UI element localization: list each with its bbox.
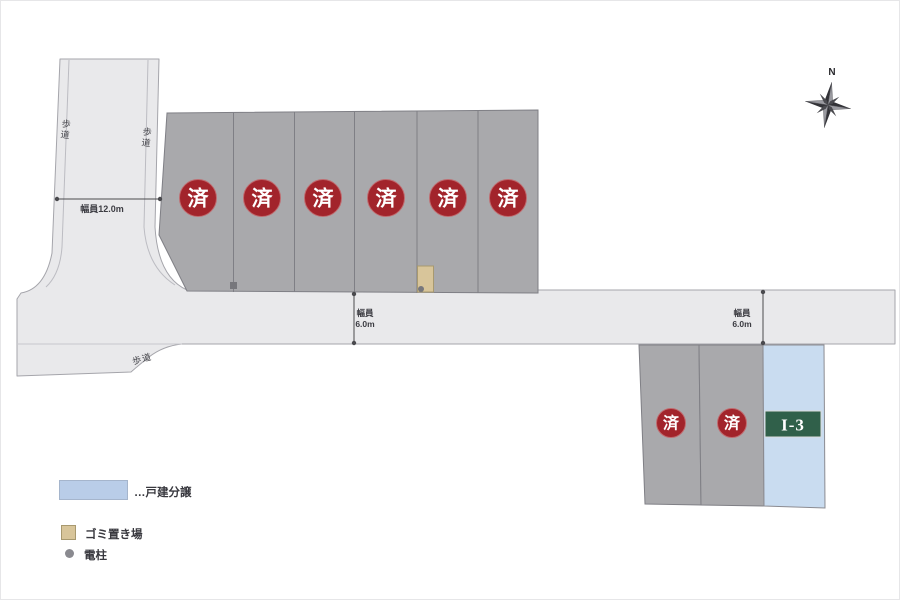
sold-badge-text: 済 (438, 187, 460, 211)
sold-badge-text: 済 (188, 187, 210, 211)
sidewalk-label: 歩道 (58, 118, 73, 141)
road-width-label-line1: 幅員 (725, 308, 759, 319)
compass-icon (802, 79, 855, 132)
sold-badge-text: 済 (724, 414, 741, 433)
utility-pole-marker (230, 282, 237, 289)
sold-badge: 済 (180, 180, 217, 217)
road-width-label: 幅員 6.0m (348, 308, 382, 330)
sold-badge: 済 (657, 409, 686, 438)
road-width-label-line2: 6.0m (725, 319, 759, 330)
sold-badge: 済 (368, 180, 405, 217)
sold-badge: 済 (305, 180, 342, 217)
legend-swatch-garbage-area (61, 525, 76, 540)
sold-badge-text: 済 (252, 187, 274, 211)
sidewalk-label: 歩道 (139, 126, 154, 149)
sold-badge: 済 (430, 180, 467, 217)
legend-swatch-utility-pole (65, 549, 74, 558)
legend-label-utility-pole: 電柱 (84, 547, 107, 563)
site-plan-canvas: 済 済 済 済 済 済 済 済 (1, 1, 900, 600)
featured-lot-plate: I-3 (765, 411, 821, 437)
sold-badge: 済 (490, 180, 527, 217)
road-width-label: 幅員12.0m (64, 202, 140, 215)
legend-label-garbage-area: ゴミ置き場 (85, 526, 143, 542)
sold-badge: 済 (244, 180, 281, 217)
site-plan: 済 済 済 済 済 済 済 済 (0, 0, 900, 600)
road-width-label-line1: 幅員 (348, 308, 382, 319)
sold-badge-text: 済 (498, 187, 520, 211)
legend-label-detached-house: …戸建分譲 (134, 484, 192, 500)
road-width-label-line2: 6.0m (348, 319, 382, 330)
compass-north-label: N (824, 67, 840, 78)
sold-badge-text: 済 (313, 187, 335, 211)
sold-badge-text: 済 (663, 414, 680, 433)
featured-lot-label: I-3 (781, 416, 805, 435)
utility-pole-marker (418, 286, 424, 292)
sold-badge-text: 済 (376, 187, 398, 211)
sold-badge: 済 (718, 409, 747, 438)
legend-swatch-detached-house (59, 480, 128, 500)
road-width-label: 幅員 6.0m (725, 308, 759, 330)
